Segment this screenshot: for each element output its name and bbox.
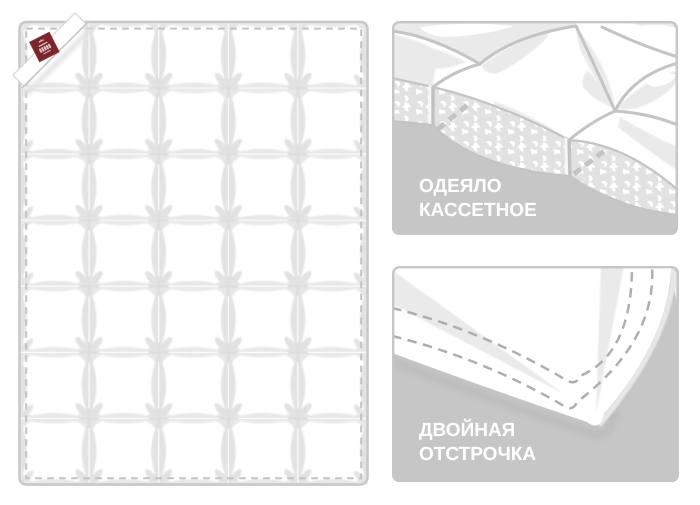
svg-text:ОТСТРОЧКА: ОТСТРОЧКА	[419, 444, 536, 465]
svg-text:ОДЕЯЛО: ОДЕЯЛО	[419, 176, 502, 197]
svg-text:КАССЕТНОЕ: КАССЕТНОЕ	[419, 200, 537, 221]
svg-text:ДВОЙНАЯ: ДВОЙНАЯ	[419, 418, 515, 441]
